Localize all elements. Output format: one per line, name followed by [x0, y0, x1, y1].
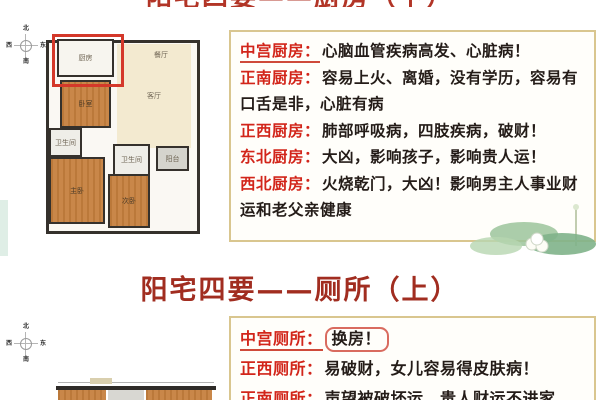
room-cropped-right	[146, 390, 212, 400]
compass-ring	[20, 40, 32, 52]
compass-ring	[20, 338, 32, 350]
entry-text: 声望被破坏运，贵人财运不进家	[325, 389, 556, 400]
room-living-label: 客厅	[147, 92, 161, 100]
compass-south-label: 南	[23, 357, 29, 363]
room-bathroom1: 卫生间	[49, 128, 82, 157]
compass-north-label: 北	[23, 324, 29, 330]
room-dining-label: 餐厅	[154, 50, 168, 60]
slide-sheet: 阳宅四要——厨房（下） 北 南 西 东 厨房 客厅 餐厅 卧室 卫生间 主卧	[0, 0, 600, 400]
entry-label-center-kitchen: 中宫厨房：	[240, 42, 320, 63]
entry-text: 肺部呼吸病，四肢疾病，破财！	[322, 122, 546, 140]
room-master-bedroom-label: 主卧	[70, 187, 84, 195]
entry-label-center-toilet: 中宫厕所：	[240, 329, 323, 351]
room-cropped-left	[58, 390, 106, 400]
entry-text: 大凶，影响孩子，影响贵人运！	[322, 148, 546, 166]
panel-entry: 正西厨房：肺部呼吸病，四肢疾病，破财！	[240, 118, 585, 145]
compass-rose: 北 南 西 东	[8, 28, 44, 64]
room-bedroom2: 次卧	[108, 174, 150, 228]
floor-plan-toilet-cropped	[52, 378, 220, 400]
room-cropped-hall	[108, 390, 144, 400]
panel-entry: 东北厨房：大凶，影响孩子，影响贵人运！	[240, 144, 585, 171]
panel-entry: 正南厕所：声望被破坏运，贵人财运不进家	[240, 384, 585, 400]
entry-label-south-kitchen: 正南厨房：	[240, 69, 320, 87]
entry-label-west-toilet: 正西厕所：	[240, 359, 323, 378]
compass-rose: 北 南 西 东	[8, 326, 44, 362]
room-bathroom2: 卫生间	[113, 144, 150, 176]
floor-plan-kitchen: 厨房 客厅 餐厅 卧室 卫生间 主卧 卫生间 阳台 次卧	[42, 36, 204, 236]
mint-watercolor-strip	[0, 200, 8, 256]
toilet-warnings-panel: 中宫厕所：换房！ 正西厕所：易破财，女儿容易得皮肤病！ 正南厕所：声望被破坏运，…	[229, 316, 596, 400]
panel-entry: 中宫厨房：心脑血管疾病高发、心脏病！	[240, 38, 585, 65]
slide1-title-text: 阳宅四要——厨房（下）	[0, 0, 600, 7]
panel-entry: 正西厕所：易破财，女儿容易得皮肤病！	[240, 354, 585, 384]
entry-text: 易破财，女儿容易得皮肤病！	[325, 359, 540, 378]
panel-entry: 正南厨房：容易上火、离婚，没有学历，容易有口舌是非，心脏有病	[240, 65, 585, 118]
compass-east-label: 东	[40, 341, 46, 347]
clipped-top-title: 阳宅四要——厨房（下）	[0, 0, 600, 7]
room-bedroom1: 卧室	[60, 80, 111, 128]
slide2-title: 阳宅四要——厕所（上）	[0, 268, 600, 307]
dimension-chip	[90, 378, 112, 384]
entry-label-northeast-kitchen: 东北厨房：	[240, 148, 320, 166]
room-bathroom1-label: 卫生间	[55, 139, 76, 147]
entry-label-northwest-kitchen: 西北厨房：	[240, 175, 320, 193]
panel-entry: 中宫厕所：换房！	[240, 324, 585, 354]
kitchen-highlight-box	[52, 34, 124, 87]
entry-label-west-kitchen: 正西厨房：	[240, 122, 320, 140]
compass-west-label: 西	[6, 43, 12, 49]
compass-south-label: 南	[23, 59, 29, 65]
entry-text-boxed: 换房！	[325, 327, 390, 352]
entry-text: 心脑血管疾病高发、心脏病！	[322, 42, 530, 60]
entry-label-south-toilet: 正南厕所：	[240, 389, 323, 400]
compass-west-label: 西	[6, 341, 12, 347]
compass-north-label: 北	[23, 26, 29, 32]
room-balcony-label: 阳台	[166, 155, 180, 163]
room-master-bedroom: 主卧	[49, 157, 105, 224]
room-bathroom2-label: 卫生间	[121, 156, 142, 164]
dimension-line	[58, 382, 214, 383]
room-balcony: 阳台	[156, 146, 189, 171]
room-bedroom2-label: 次卧	[122, 197, 136, 205]
room-bedroom1-label: 卧室	[79, 100, 93, 108]
lotus-illustration	[466, 200, 598, 260]
